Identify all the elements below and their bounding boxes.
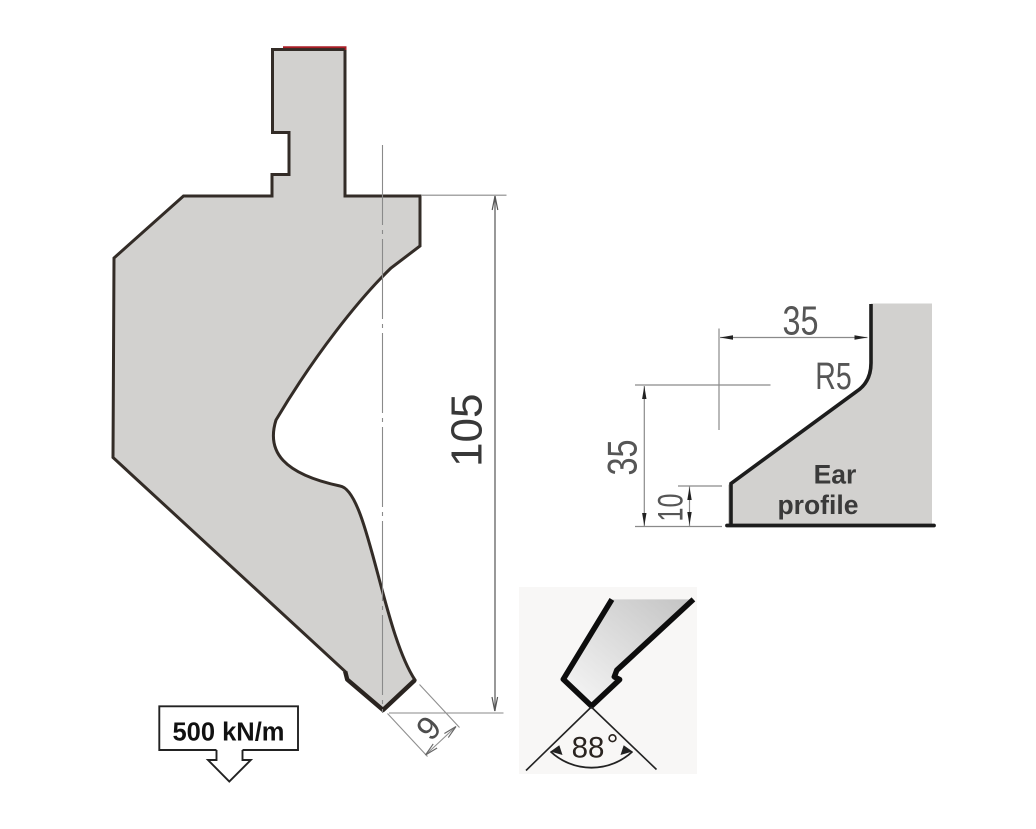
svg-text:R5: R5 (815, 356, 851, 398)
svg-text:9: 9 (409, 709, 449, 747)
svg-text:500 kN/m: 500 kN/m (173, 719, 285, 747)
svg-text:Ear: Ear (814, 460, 857, 490)
svg-text:10: 10 (652, 493, 691, 521)
svg-text:35: 35 (598, 440, 645, 476)
svg-text:profile: profile (778, 490, 859, 520)
svg-text:105: 105 (443, 394, 492, 467)
svg-text:88: 88 (572, 732, 605, 765)
svg-text:35: 35 (782, 298, 818, 343)
